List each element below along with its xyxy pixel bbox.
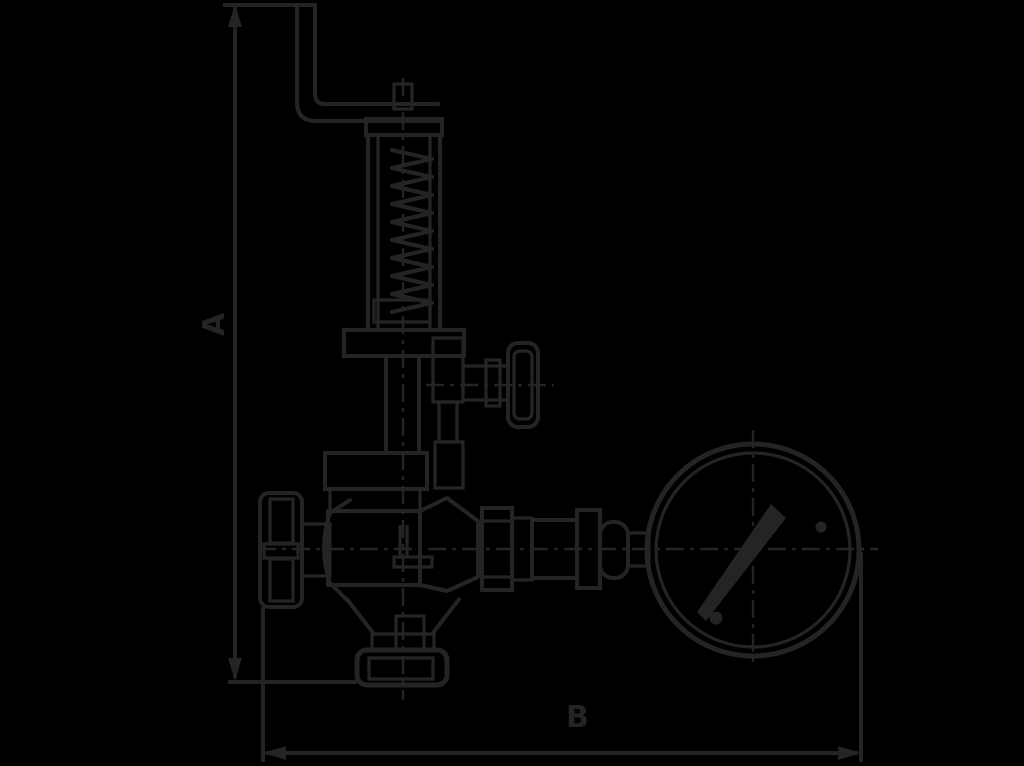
drawing-canvas: A B	[0, 0, 1024, 766]
boss-stem	[439, 402, 457, 442]
gauge-stop-pin-high	[816, 522, 827, 533]
dimension-a-label: A	[197, 312, 232, 336]
union-collar	[330, 489, 420, 511]
spring-bonnet	[344, 135, 464, 356]
lever-inner-edge	[315, 5, 438, 104]
boss-lower-block	[435, 442, 463, 488]
hand-knob-inner-top	[270, 499, 293, 543]
arrowhead-up	[228, 4, 242, 27]
union-nut-body	[325, 453, 427, 489]
union-nut	[325, 453, 427, 511]
coil-spring	[392, 150, 432, 312]
body-outlet-cone	[420, 498, 478, 591]
gauge-needle	[697, 504, 786, 621]
lower-cone-right	[432, 598, 460, 634]
arrowhead-down	[228, 658, 242, 681]
side-boss	[433, 338, 463, 402]
gauge-stop-pin-low	[710, 612, 723, 625]
dimension-b-label: B	[566, 700, 589, 735]
arrowhead-right	[838, 746, 861, 760]
lower-cone-left	[346, 598, 374, 634]
valve-body	[324, 498, 478, 603]
valve-technical-drawing: A B	[0, 0, 1024, 766]
valve-neck	[386, 338, 463, 488]
arrowhead-left	[263, 746, 286, 760]
hand-knob-inner-bottom	[270, 559, 293, 601]
flange-inner	[369, 658, 433, 679]
hand-knob-mid-band	[264, 544, 298, 558]
inner-stem-tbar	[394, 557, 432, 567]
lifting-lever	[297, 5, 438, 121]
